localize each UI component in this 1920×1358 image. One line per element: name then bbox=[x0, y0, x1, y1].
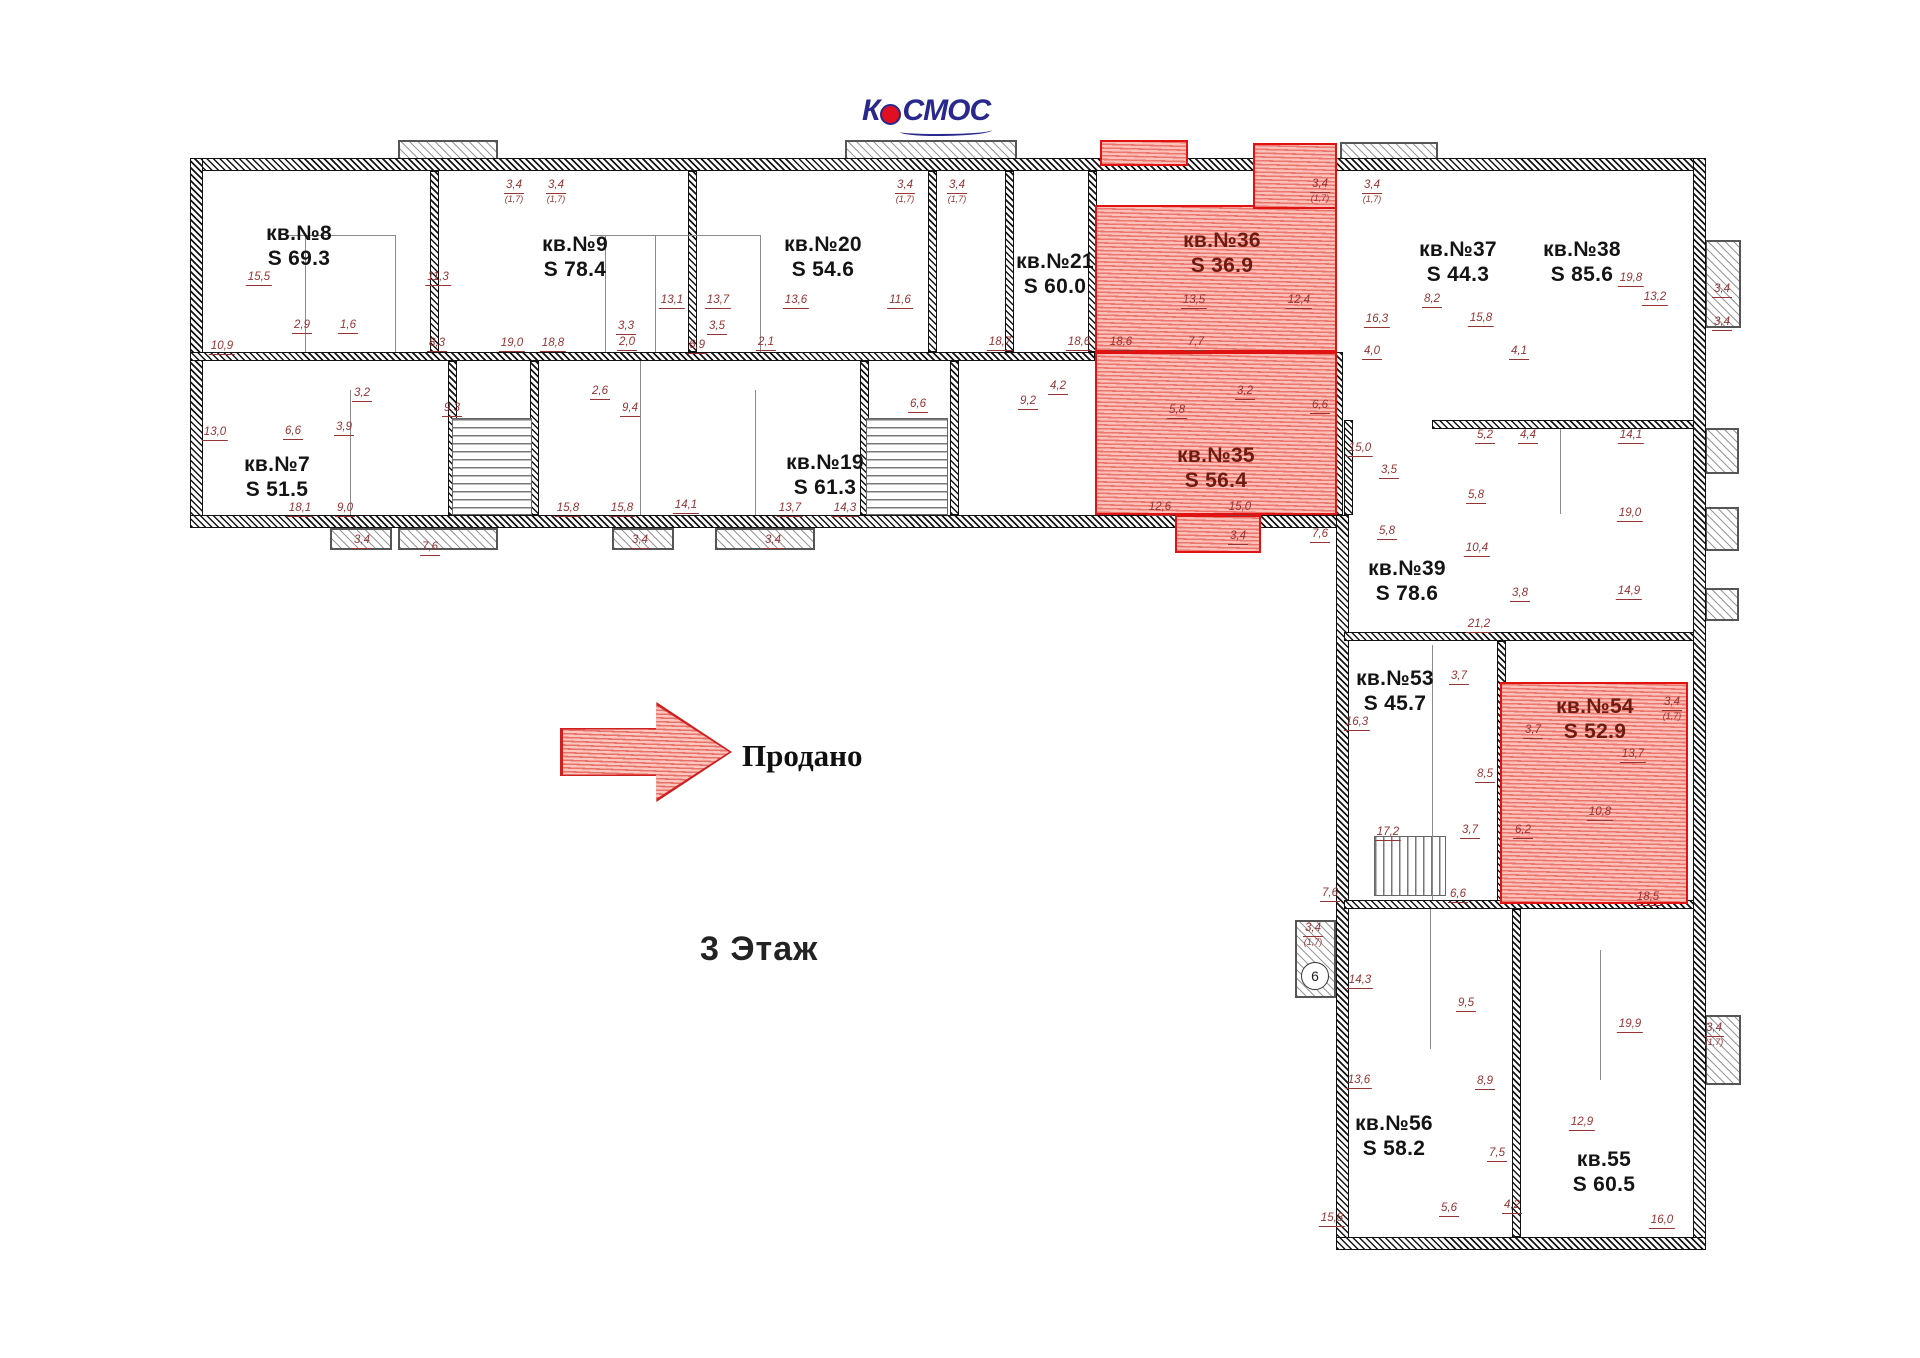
wall-segment bbox=[1344, 632, 1694, 641]
dimension-label: 7,6 bbox=[1310, 529, 1330, 543]
dimension-label: 18,6 bbox=[1108, 337, 1134, 351]
apartment-label-9: кв.№9S 78.4 bbox=[542, 232, 608, 282]
dimension-label: 18,1 bbox=[287, 503, 313, 517]
apartment-label-35: кв.№35S 56.4 bbox=[1177, 443, 1255, 493]
wall-segment bbox=[928, 171, 937, 352]
dimension-label: 14,9 bbox=[1616, 586, 1642, 600]
balcony bbox=[398, 528, 498, 550]
room-partition bbox=[760, 235, 761, 352]
apartment-label-39: кв.№39S 78.6 bbox=[1368, 556, 1446, 606]
dimension-label: 19,8 bbox=[1618, 273, 1644, 287]
dimension-label: 4,0 bbox=[1362, 346, 1382, 360]
room-partition bbox=[655, 235, 656, 352]
dimension-label: 4,1 bbox=[1509, 346, 1529, 360]
dimension-label: 10,9 bbox=[209, 341, 235, 355]
dimension-label: 4,4 bbox=[1518, 430, 1538, 444]
dimension-label: 3,4 bbox=[630, 535, 650, 549]
wall-segment bbox=[430, 171, 439, 352]
kosmos-logo-text: КСМОС bbox=[862, 96, 1012, 126]
dimension-label: 16,0 bbox=[1649, 1215, 1675, 1229]
apartment-label-38: кв.№38S 85.6 bbox=[1543, 237, 1621, 287]
dimension-label: 3,4(1,7) bbox=[947, 180, 967, 204]
sold-legend-label: Продано bbox=[742, 738, 863, 774]
dimension-label: 13,0 bbox=[202, 427, 228, 441]
apartment-label-20: кв.№20S 54.6 bbox=[784, 232, 862, 282]
dimension-label: 12,4 bbox=[1286, 295, 1312, 309]
wall-segment bbox=[1432, 420, 1694, 429]
apartment-label-21: кв.№21S 60.0 bbox=[1016, 249, 1094, 299]
dimension-label: 3,4(1,7) bbox=[504, 180, 524, 204]
wall-segment bbox=[950, 361, 959, 515]
dimension-label: 3,8 bbox=[1510, 588, 1530, 602]
dimension-label: 6,6 bbox=[908, 399, 928, 413]
dimension-label: 16,3 bbox=[1364, 314, 1390, 328]
sold-legend-arrow bbox=[560, 702, 732, 802]
balcony bbox=[845, 140, 1017, 160]
dimension-label: 6,6 bbox=[1448, 889, 1468, 903]
apartment-label-8: кв.№8S 69.3 bbox=[266, 221, 332, 271]
dimension-label: 18,7 bbox=[987, 337, 1013, 351]
dimension-label: 7,6 bbox=[1320, 888, 1340, 902]
dimension-label: 19,0 bbox=[499, 338, 525, 352]
dimension-label: 5,2 bbox=[1475, 430, 1495, 444]
dimension-label: 3,3 bbox=[616, 321, 636, 335]
dimension-label: 8,3 bbox=[427, 338, 447, 352]
dimension-label: 15,8 bbox=[609, 503, 635, 517]
dimension-label: 11,6 bbox=[887, 295, 913, 309]
dimension-label: 3,4 bbox=[763, 535, 783, 549]
dimension-label: 6,2 bbox=[1513, 825, 1533, 839]
dimension-label: 3,4 bbox=[1712, 284, 1732, 298]
dimension-label: 3,4(1,7) bbox=[1662, 697, 1682, 721]
dimension-label: 6,6 bbox=[1310, 400, 1330, 414]
dimension-label: 5,8 bbox=[1167, 405, 1187, 419]
balcony bbox=[1705, 507, 1739, 551]
room-partition bbox=[395, 235, 396, 352]
dimension-label: 12,6 bbox=[1147, 502, 1173, 516]
dimension-label: 2,1 bbox=[756, 337, 776, 351]
wall-segment bbox=[1336, 1237, 1706, 1250]
dimension-label: 3,4(1,7) bbox=[546, 180, 566, 204]
dimension-label: 5,8 bbox=[1377, 526, 1397, 540]
dimension-label: 19,0 bbox=[1617, 508, 1643, 522]
dimension-label: 3,4(1,7) bbox=[895, 180, 915, 204]
dimension-label: 13,7 bbox=[777, 503, 803, 517]
dimension-label: 6,9 bbox=[687, 340, 707, 354]
room-partition bbox=[1600, 950, 1601, 1080]
dimension-label: 18,6 bbox=[1066, 337, 1092, 351]
dimension-label: 5,8 bbox=[1466, 490, 1486, 504]
logo-red-dot-icon bbox=[880, 104, 901, 125]
dimension-label: 3,2 bbox=[352, 388, 372, 402]
logo-letter-k: К bbox=[862, 96, 879, 126]
dimension-label: 1,6 bbox=[338, 320, 358, 334]
dimension-label: 3,4(1,7) bbox=[1362, 180, 1382, 204]
sold-apartment-region bbox=[1100, 140, 1188, 166]
stairwell bbox=[1374, 836, 1446, 896]
dimension-label: 3,7 bbox=[1523, 725, 1543, 739]
wall-segment bbox=[1336, 515, 1349, 1250]
dimension-label: 3,7 bbox=[1460, 825, 1480, 839]
dimension-label: 15,8 bbox=[1468, 313, 1494, 327]
dimension-label: 9,5 bbox=[1456, 998, 1476, 1012]
dimension-label: 10,4 bbox=[1464, 543, 1490, 557]
dimension-label: 19,9 bbox=[1617, 1019, 1643, 1033]
apartment-label-54: кв.№54S 52.9 bbox=[1556, 694, 1634, 744]
dimension-label: 9,2 bbox=[1018, 396, 1038, 410]
wall-segment bbox=[190, 352, 1095, 361]
dimension-label: 3,4 bbox=[1228, 531, 1248, 545]
wall-segment bbox=[190, 158, 1705, 171]
dimension-label: 4,2 bbox=[1502, 1200, 1522, 1214]
dimension-label: 8,2 bbox=[1422, 294, 1442, 308]
wall-segment bbox=[190, 158, 203, 528]
room-partition bbox=[755, 390, 756, 515]
dimension-label: 2,6 bbox=[590, 386, 610, 400]
sold-apartment-region bbox=[1175, 515, 1261, 553]
dimension-label: 2,0 bbox=[617, 337, 637, 351]
dimension-label: 15,0 bbox=[1227, 502, 1253, 516]
dimension-label: 7,5 bbox=[1487, 1148, 1507, 1162]
apartment-label-56: кв.№56S 58.2 bbox=[1355, 1111, 1433, 1161]
dimension-label: 5,6 bbox=[1439, 1203, 1459, 1217]
wall-segment bbox=[1693, 158, 1706, 1250]
dimension-label: 2,9 bbox=[292, 320, 312, 334]
dimension-label: 7,7 bbox=[1186, 337, 1206, 351]
stairwell bbox=[866, 418, 948, 515]
dimension-label: 21,2 bbox=[1466, 619, 1492, 633]
floor-title: 3 Этаж bbox=[700, 930, 818, 969]
wall-segment bbox=[1005, 171, 1014, 352]
arrow-right-icon bbox=[560, 702, 732, 802]
apartment-label-7: кв.№7S 51.5 bbox=[244, 452, 310, 502]
dimension-label: 7,6 bbox=[420, 542, 440, 556]
dimension-label: 14,3 bbox=[832, 503, 858, 517]
dimension-label: 18,8 bbox=[540, 338, 566, 352]
room-partition bbox=[590, 235, 760, 236]
dimension-label: 6,6 bbox=[283, 426, 303, 440]
room-partition bbox=[350, 390, 351, 515]
dimension-label: 3,9 bbox=[334, 422, 354, 436]
dimension-label: 10,8 bbox=[1587, 807, 1613, 821]
apartment-label-53: кв.№53S 45.7 bbox=[1356, 666, 1434, 716]
dimension-label: 3,5 bbox=[1379, 465, 1399, 479]
dimension-label: 9,3 bbox=[442, 403, 462, 417]
dimension-label: 13,6 bbox=[1346, 1075, 1372, 1089]
apartment-label-36: кв.№36S 36.9 bbox=[1183, 228, 1261, 278]
dimension-label: 3,4 bbox=[1712, 317, 1732, 331]
dimension-label: 3,5 bbox=[707, 321, 727, 335]
logo-letters-rest: СМОС bbox=[902, 96, 990, 126]
dimension-label: 13,6 bbox=[783, 295, 809, 309]
dimension-label: 3,4(1,7) bbox=[1303, 923, 1323, 947]
arrow-hatch-fill bbox=[563, 705, 729, 799]
dimension-label: 14,1 bbox=[673, 500, 699, 514]
balcony bbox=[1705, 588, 1739, 621]
dimension-label: 13,1 bbox=[659, 295, 685, 309]
wall-segment bbox=[1512, 909, 1521, 1237]
dimension-label: 12,9 bbox=[1569, 1117, 1595, 1131]
dimension-label: 14,3 bbox=[1347, 975, 1373, 989]
wall-segment bbox=[688, 171, 697, 352]
dimension-label: 13,7 bbox=[705, 295, 731, 309]
room-partition bbox=[1430, 909, 1431, 1049]
floor-plan-canvas: КСМОС кв.№8S 69.3кв.№9S 78.4кв.№20S 54.6… bbox=[0, 0, 1920, 1358]
dimension-label: 8,9 bbox=[1475, 1076, 1495, 1090]
dimension-label: 13,5 bbox=[1181, 295, 1207, 309]
dimension-label: 3,4(1,7) bbox=[1704, 1023, 1724, 1047]
balcony bbox=[1705, 428, 1739, 474]
dimension-label: 15,0 bbox=[1347, 443, 1373, 457]
dimension-label: 18,5 bbox=[1635, 892, 1661, 906]
dimension-label: 9,4 bbox=[620, 403, 640, 417]
balcony bbox=[398, 140, 498, 160]
room-partition bbox=[1560, 429, 1561, 514]
dimension-label: 15,8 bbox=[1319, 1213, 1345, 1227]
apartment-label-55: кв.55S 60.5 bbox=[1573, 1147, 1636, 1197]
dimension-label: 3,2 bbox=[1235, 386, 1255, 400]
dimension-label: 13,7 bbox=[1620, 749, 1646, 763]
dimension-label: 4,2 bbox=[1048, 381, 1068, 395]
dimension-label: 14,1 bbox=[1618, 430, 1644, 444]
apartment-label-19: кв.№19S 61.3 bbox=[786, 450, 864, 500]
dimension-label: 13,2 bbox=[1642, 292, 1668, 306]
dimension-label: 11,3 bbox=[425, 272, 451, 286]
dimension-label: 16,3 bbox=[1344, 717, 1370, 731]
dimension-label: 9,0 bbox=[335, 503, 355, 517]
entrance-number-badge: 6 bbox=[1301, 962, 1329, 990]
dimension-label: 3,4(1,7) bbox=[1310, 179, 1330, 203]
dimension-label: 15,8 bbox=[555, 503, 581, 517]
wall-segment bbox=[1344, 420, 1353, 515]
dimension-label: 3,4 bbox=[352, 535, 372, 549]
logo-underline-swash bbox=[900, 126, 992, 136]
dimension-label: 17,2 bbox=[1375, 827, 1401, 841]
dimension-label: 8,5 bbox=[1475, 769, 1495, 783]
dimension-label: 3,7 bbox=[1449, 671, 1469, 685]
dimension-label: 15,5 bbox=[246, 272, 272, 286]
stairwell bbox=[452, 418, 532, 515]
room-partition bbox=[640, 361, 641, 515]
apartment-label-37: кв.№37S 44.3 bbox=[1419, 237, 1497, 287]
